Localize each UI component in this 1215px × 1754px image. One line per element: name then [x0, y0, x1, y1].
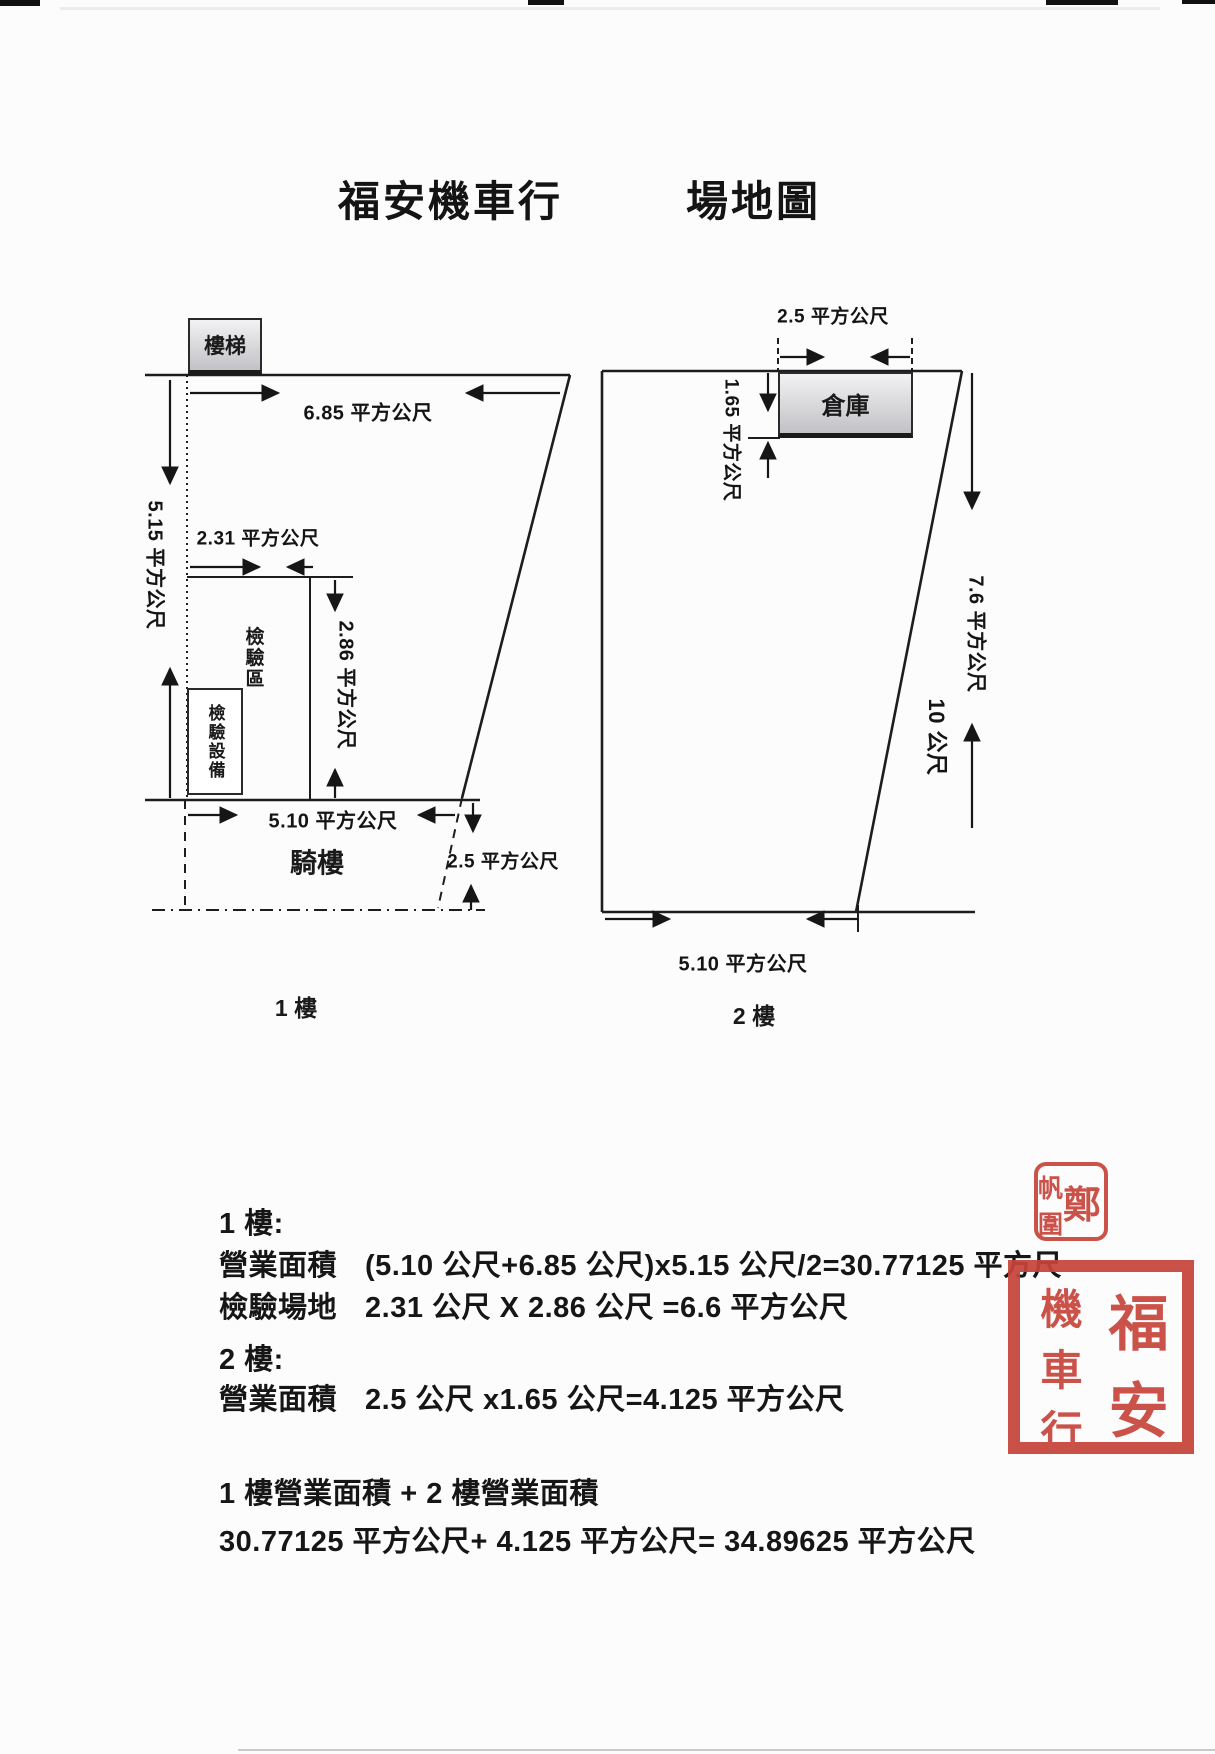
- seal-char: 行: [1041, 1398, 1083, 1459]
- f2-dim-25: 2.5 平方公尺: [777, 302, 889, 329]
- f1-dim-25: 2.5 平方公尺: [447, 847, 559, 874]
- calc-floor2-heading: 2 樓:: [219, 1336, 284, 1378]
- f2-slanted-wall: [856, 371, 962, 912]
- f1-equipment-label: 檢驗設備: [203, 704, 228, 780]
- f2-dim-10: 10 公尺: [922, 698, 954, 775]
- f2-dim-165: 1.65 平方公尺: [720, 379, 747, 502]
- calc-floor1-line2-label: 檢驗場地: [219, 1292, 337, 1324]
- f2-warehouse-box: 倉庫: [778, 372, 913, 438]
- calc-floor1-business-area: 營業面積(5.10 公尺+6.85 公尺)x5.15 公尺/2=30.77125…: [219, 1242, 1062, 1284]
- f1-equipment-box: 檢驗設備: [187, 688, 243, 795]
- company-seal: 福 安 機 車 行: [1008, 1260, 1194, 1454]
- floor-plan-linework: [0, 0, 1215, 1754]
- f1-dim-286: 2.86 平方公尺: [334, 621, 363, 750]
- calc-floor2-business-area: 營業面積2.5 公尺 x1.65 公尺=4.125 平方公尺: [219, 1376, 845, 1418]
- seal-char: 福: [1109, 1276, 1169, 1363]
- f2-warehouse-label: 倉庫: [822, 386, 870, 421]
- calc-floor1-line2-value: 2.31 公尺 X 2.86 公尺 =6.6 平方公尺: [365, 1292, 848, 1324]
- seal-char: 安: [1109, 1363, 1169, 1450]
- f2-dim-76: 7.6 平方公尺: [964, 575, 993, 692]
- f1-dim-685: 6.85 平方公尺: [304, 397, 433, 426]
- f1-dim-510: 5.10 平方公尺: [269, 805, 398, 834]
- calc-total-sum-line: 30.77125 平方公尺+ 4.125 平方公尺= 34.89625 平方公尺: [219, 1518, 976, 1560]
- calc-floor2-line1-value: 2.5 公尺 x1.65 公尺=4.125 平方公尺: [365, 1384, 845, 1416]
- calc-floor1-inspection-site: 檢驗場地2.31 公尺 X 2.86 公尺 =6.6 平方公尺: [219, 1284, 848, 1326]
- f1-dim-515: 5.15 平方公尺: [143, 501, 172, 630]
- f1-dim-231: 2.31 平方公尺: [197, 524, 320, 551]
- calc-floor1-line1-value: (5.10 公尺+6.85 公尺)x5.15 公尺/2=30.77125 平方尺: [365, 1250, 1062, 1282]
- floor2-name-label: 2 樓: [733, 997, 775, 1031]
- calc-total-label-line: 1 樓營業面積 + 2 樓營業面積: [219, 1470, 599, 1512]
- f1-slanted-wall: [462, 375, 570, 798]
- seal-char: 鄭: [1063, 1169, 1101, 1234]
- f1-stairs-box: 樓梯: [188, 318, 262, 375]
- f2-dim-510: 5.10 平方公尺: [679, 948, 808, 977]
- f1-inspection-area-label: 檢驗區: [240, 627, 267, 690]
- f1-arcade-label: 騎樓: [290, 842, 344, 881]
- seal-char: 車: [1041, 1337, 1083, 1398]
- seal-char: 帆: [1038, 1169, 1063, 1205]
- calc-floor2-line1-label: 營業面積: [219, 1384, 337, 1416]
- calc-floor1-line1-label: 營業面積: [219, 1250, 337, 1282]
- seal-char: 機: [1041, 1276, 1083, 1337]
- floor1-name-label: 1 樓: [275, 989, 317, 1023]
- seal-char: 圍: [1038, 1205, 1063, 1241]
- personal-name-seal: 鄭 帆 圍: [1034, 1162, 1108, 1241]
- calc-floor1-heading: 1 樓:: [219, 1200, 284, 1242]
- scanned-site-plan-document: 福安機車行 場地圖: [0, 0, 1215, 1754]
- f1-stairs-label: 樓梯: [204, 330, 246, 360]
